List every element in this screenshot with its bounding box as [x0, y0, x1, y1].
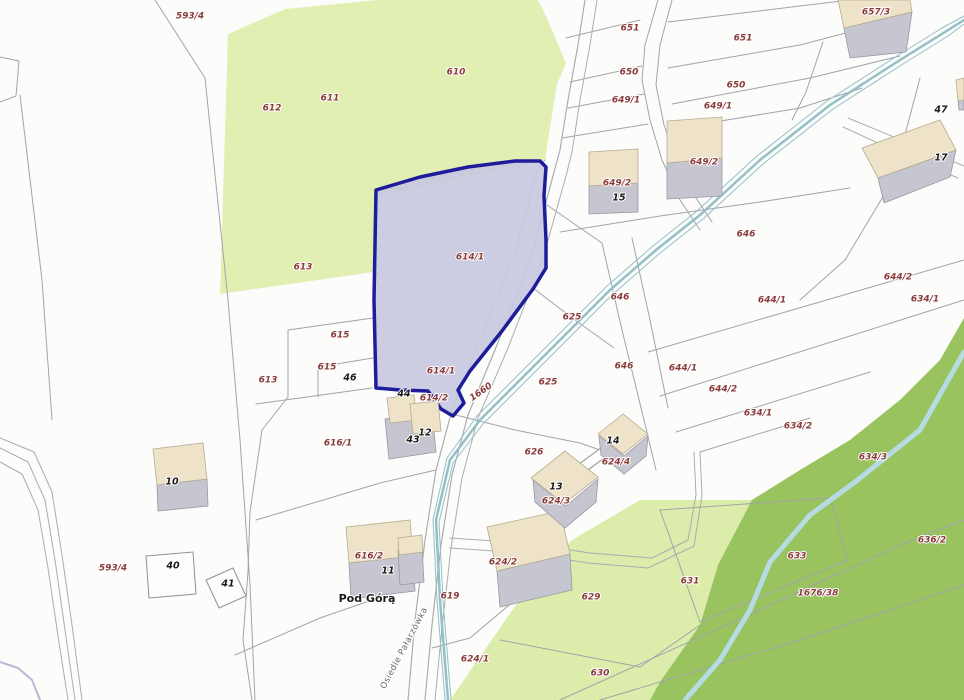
parcel-label-593-4: 593/4 — [99, 564, 127, 574]
parcel-label-616-1: 616/1 — [324, 439, 352, 449]
parcel-label-634-3: 634/3 — [859, 453, 887, 463]
building-label-13: 13 — [549, 482, 563, 493]
map-canvas[interactable]: 593/4610612611651651650650649/1649/1657/… — [0, 0, 964, 700]
parcel-label-646: 646 — [615, 362, 634, 372]
parcel-label-631: 631 — [681, 577, 700, 587]
arc-bottom-left — [0, 662, 40, 700]
strip-646-east — [632, 238, 668, 408]
parcel-label-593-4: 593/4 — [176, 12, 204, 22]
building-label-43: 43 — [405, 435, 420, 446]
parcel-label-646: 646 — [737, 230, 756, 240]
parcel-label-630: 630 — [591, 669, 610, 679]
parcel-label-616-2: 616/2 — [355, 552, 383, 562]
building-649-2-roof — [667, 117, 722, 163]
parcel-label-615: 615 — [318, 363, 337, 373]
building-label-10: 10 — [165, 477, 179, 488]
parcel-label-613: 613 — [259, 376, 278, 386]
parcel-label-614-1: 614/1 — [427, 367, 455, 377]
parcel-label-611: 611 — [321, 94, 340, 104]
parcel-label-625: 625 — [539, 378, 558, 388]
building-label-15: 15 — [612, 193, 626, 204]
building-label-40: 40 — [165, 561, 180, 572]
building-label-46: 46 — [342, 373, 357, 384]
parcel-label-624-2: 624/2 — [489, 558, 517, 568]
parcel-label-649-2: 649/2 — [603, 179, 631, 189]
place-label-pod-górą: Pod Górą — [339, 592, 396, 605]
building-11-annex-roof — [398, 535, 423, 555]
boundary-616-1-road — [380, 470, 436, 483]
parcel-label-649-2: 649/2 — [690, 158, 718, 168]
building-label-12: 12 — [418, 428, 432, 439]
parcel-label-644-2: 644/2 — [884, 273, 912, 283]
parcel-label-634-1: 634/1 — [744, 409, 772, 419]
parcel-label-629: 629 — [582, 593, 601, 603]
parcel-label-644-1: 644/1 — [669, 364, 697, 374]
parcel-label-651: 651 — [734, 34, 753, 44]
lot-40 — [146, 552, 196, 598]
parcel-label-1676-38: 1676/38 — [798, 589, 839, 599]
building-label-17: 17 — [934, 153, 948, 164]
parcel-label-644-2: 644/2 — [709, 385, 737, 395]
parcel-label-633: 633 — [788, 552, 807, 562]
parcel-label-614-1: 614/1 — [456, 253, 484, 263]
parcel-label-651: 651 — [621, 24, 640, 34]
boundary-pod-gora — [235, 600, 372, 655]
parcel-label-657-3: 657/3 — [862, 8, 890, 18]
strip-644-2-634-1 — [676, 372, 870, 432]
parcel-label-626: 626 — [525, 448, 544, 458]
parcel-label-624-1: 624/1 — [461, 655, 489, 665]
parcel-label-634-1: 634/1 — [911, 295, 939, 305]
boundary-615-bottom — [256, 388, 372, 404]
boundary-corner-tl — [0, 57, 19, 102]
parcel-label-646: 646 — [611, 293, 630, 303]
parcel-label-644-1: 644/1 — [758, 296, 786, 306]
road-left-a — [0, 448, 75, 700]
parcel-label-649-1: 649/1 — [704, 102, 732, 112]
parcel-label-614-2: 614/2 — [420, 394, 448, 404]
boundary-616-1-north — [256, 483, 380, 520]
parcel-label-634-2: 634/2 — [784, 422, 812, 432]
boundary-650-649-e — [672, 56, 900, 104]
parcel-label-1660: 1660 — [468, 381, 494, 404]
parcel-label-624-4: 624/4 — [602, 458, 630, 468]
parcel-label-610: 610 — [447, 68, 466, 78]
building-label-14: 14 — [606, 436, 620, 447]
building-edge-right-roof — [956, 78, 964, 101]
building-label-47: 47 — [933, 105, 948, 116]
building-label-11: 11 — [381, 566, 394, 577]
parcel-label-650: 650 — [727, 81, 746, 91]
building-label-41: 41 — [220, 579, 234, 590]
boundary-left — [20, 95, 52, 420]
parcel-label-624-3: 624/3 — [542, 497, 570, 507]
building-10-roof — [153, 443, 207, 485]
boundary-651-top-e — [668, 0, 850, 22]
cadastral-map[interactable]: 593/4610612611651651650650649/1649/1657/… — [0, 0, 964, 700]
parcel-label-625: 625 — [563, 313, 582, 323]
boundary-616-west — [248, 397, 288, 572]
parcel-label-636-2: 636/2 — [918, 536, 946, 546]
boundary-615-top — [288, 318, 373, 330]
strip-646-644-1 — [648, 260, 964, 352]
building-label-44: 44 — [396, 389, 411, 400]
street-label-osiedle-palarzowka: Osiedle Pałarzówka — [378, 605, 430, 691]
parcel-label-619: 619 — [441, 592, 460, 602]
parcel-label-650: 650 — [620, 68, 639, 78]
parcel-label-613: 613 — [294, 263, 313, 273]
parcel-label-615: 615 — [331, 331, 350, 341]
highlighted-parcel-614-1[interactable] — [374, 161, 546, 416]
parcel-label-649-1: 649/1 — [612, 96, 640, 106]
parcel-label-612: 612 — [263, 104, 282, 114]
